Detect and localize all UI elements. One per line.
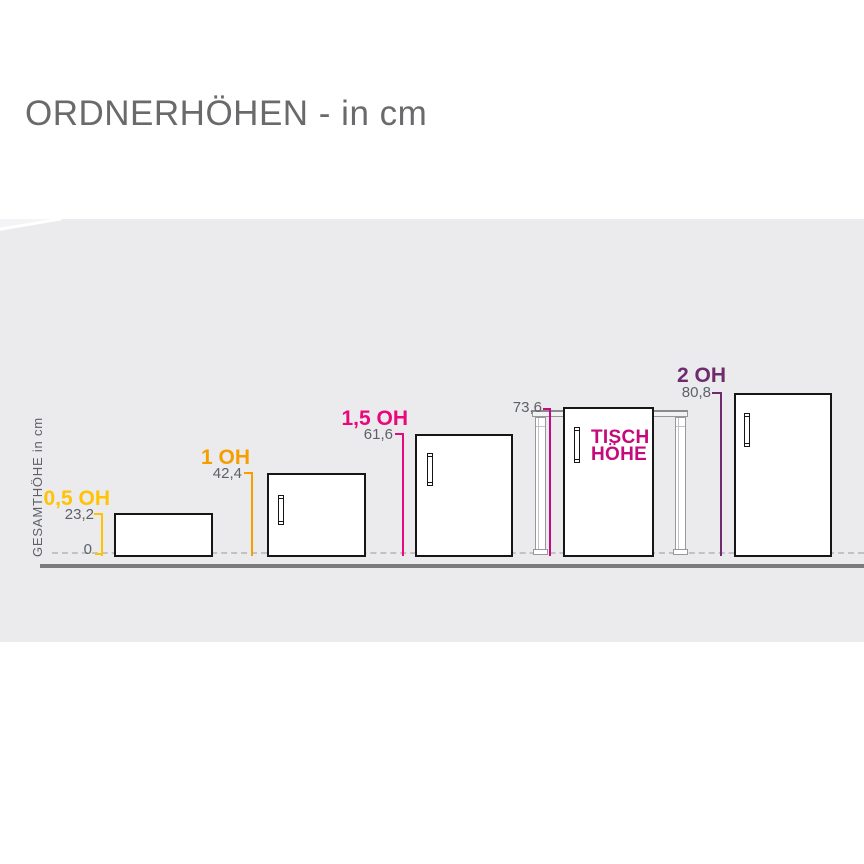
value-2oh: 80,8 [645,384,711,401]
cabinet-05oh [114,513,213,557]
value-05oh: 23,2 [30,506,94,523]
measure-line-15oh [402,433,404,556]
measure-line-table-height [549,408,551,556]
ordner-heights-diagram: ORDNERHÖHEN - in cm GESAMTHÖHE in cm TIS… [0,0,864,864]
cabinet-under-table: TISCH HÖHE [563,407,654,557]
cabinet-2oh [734,393,832,557]
value-1oh: 42,4 [170,465,242,482]
table-height-label: TISCH HÖHE [591,429,650,463]
measure-tick-2oh [712,392,722,394]
door-handle-icon [278,495,284,525]
door-handle-icon [427,453,433,486]
table-foot-right [673,549,688,555]
measure-tick-table-height [543,408,551,410]
table-height-label-line2: HÖHE [591,446,650,463]
table-leg-right [675,417,686,554]
door-handle-icon [574,427,580,463]
cabinet-15oh [415,434,513,557]
measure-tick-bottom-05oh [95,553,103,555]
table-foot-left [533,549,548,555]
measure-line-05oh [101,513,103,556]
measure-line-1oh [251,472,253,556]
floor-line [40,564,864,568]
table-leg-left [535,417,546,554]
cabinet-1oh [267,473,366,557]
value-15oh: 61,6 [325,426,393,443]
door-handle-icon [744,413,750,447]
measure-line-2oh [720,392,722,556]
value-table-height: 73,6 [478,399,542,416]
measure-tick-15oh [395,433,404,435]
page-title: ORDNERHÖHEN - in cm [25,94,427,134]
measure-tick-1oh [244,472,253,474]
zero-label: 0 [30,541,92,558]
measure-tick-top-05oh [94,513,103,515]
